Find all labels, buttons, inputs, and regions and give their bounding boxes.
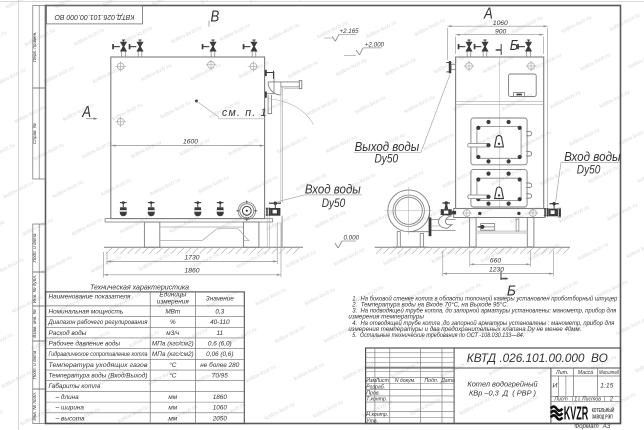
svg-text:Пров.: Пров. xyxy=(366,391,380,397)
svg-text:0,6 (6,0): 0,6 (6,0) xyxy=(208,340,232,347)
svg-text:KVZR: KVZR xyxy=(564,404,589,424)
svg-text:11: 11 xyxy=(216,330,223,337)
svg-text:%: % xyxy=(170,319,176,326)
svg-text:Техническая характеристика: Техническая характеристика xyxy=(90,284,189,291)
svg-text:2: 2 xyxy=(609,396,613,402)
svg-text:мм: мм xyxy=(168,415,177,422)
svg-text:+2.000: +2.000 xyxy=(365,42,385,49)
svg-text:N докум.: N докум. xyxy=(395,378,416,384)
svg-text:Температура воды (Вход/Выход): Температура воды (Вход/Выход) xyxy=(49,372,148,380)
svg-text:Температура уходящих газов: Температура уходящих газов xyxy=(49,361,149,369)
svg-text:КОТЕЛЬНЫЙ: КОТЕЛЬНЫЙ xyxy=(592,406,614,414)
svg-text:0,3: 0,3 xyxy=(215,308,224,315)
svg-text:°С: °С xyxy=(169,372,177,380)
svg-text:– высота: – высота xyxy=(49,415,85,422)
svg-text:5. Остальные технические треб: 5. Остальные технические требования по О… xyxy=(352,332,524,339)
svg-text:КВр –0,3 Д ( РВР ): КВр –0,3 Д ( РВР ) xyxy=(469,389,537,398)
svg-text:Подп.: Подп. xyxy=(424,378,438,384)
svg-text:Разраб.: Разраб. xyxy=(366,384,385,390)
svg-text:900: 900 xyxy=(495,29,506,36)
svg-text:Лит.: Лит. xyxy=(555,370,569,376)
svg-text:Рабочее давление воды: Рабочее давление воды xyxy=(49,339,121,347)
svg-text:ЗАВОД РЭП: ЗАВОД РЭП xyxy=(592,415,613,421)
svg-text:Котел водогрейный: Котел водогрейный xyxy=(467,380,537,389)
svg-text:Инв. № подл.: Инв. № подл. xyxy=(32,392,37,421)
svg-text:А: А xyxy=(483,6,493,23)
svg-text:1600: 1600 xyxy=(183,139,198,146)
svg-text:Перв. примен.: Перв. примен. xyxy=(32,31,37,62)
svg-text:А3: А3 xyxy=(602,423,611,430)
svg-text:Утв.: Утв. xyxy=(366,418,378,424)
svg-text:1730: 1730 xyxy=(185,254,200,261)
svg-text:Дата: Дата xyxy=(440,378,455,384)
svg-text:0.000: 0.000 xyxy=(344,235,360,242)
svg-text:Лист: Лист xyxy=(375,378,390,384)
svg-text:Масштаб: Масштаб xyxy=(599,370,620,376)
svg-text:1060: 1060 xyxy=(493,20,508,27)
svg-text:Лист: Лист xyxy=(553,396,568,402)
svg-text:Справ. №: Справ. № xyxy=(32,123,37,144)
svg-text:Б: Б xyxy=(510,38,519,54)
svg-text:Единицы: Единицы xyxy=(159,291,186,299)
svg-text:И: И xyxy=(553,383,558,390)
svg-text:Dy50: Dy50 xyxy=(577,163,601,177)
svg-text:1:15: 1:15 xyxy=(600,383,613,390)
svg-text:70/95: 70/95 xyxy=(212,373,228,380)
svg-text:не более 280: не более 280 xyxy=(200,361,239,369)
svg-text:Формат: Формат xyxy=(574,423,599,430)
svg-text:КВТД.026.101.00.000 ВО: КВТД.026.101.00.000 ВО xyxy=(54,13,134,20)
svg-text:Вход воды: Вход воды xyxy=(305,181,361,196)
svg-text:2050: 2050 xyxy=(212,415,228,422)
svg-text:Габариты котла: Габариты котла xyxy=(49,382,101,390)
svg-text:1: 1 xyxy=(574,396,577,402)
svg-text:МПа (кгс/см2): МПа (кгс/см2) xyxy=(152,340,194,347)
svg-text:м3/ч: м3/ч xyxy=(166,330,180,337)
svg-text:660: 660 xyxy=(490,257,501,264)
svg-text:40-110: 40-110 xyxy=(210,319,230,326)
svg-text:Значение: Значение xyxy=(206,296,234,303)
svg-text:Подп. и дата: Подп. и дата xyxy=(32,350,37,379)
svg-text:Расход воды: Расход воды xyxy=(49,329,87,337)
svg-text:Инв. № дубл.: Инв. № дубл. xyxy=(32,275,37,303)
svg-text:измерения: измерения xyxy=(157,299,190,306)
svg-text:– длина: – длина xyxy=(49,393,80,401)
svg-text:см. п. 1: см. п. 1 xyxy=(222,107,268,119)
svg-text:°С: °С xyxy=(169,361,177,369)
svg-text:Подп. и дата: Подп. и дата xyxy=(32,233,37,262)
svg-text:Гидравлическое сопротивление к: Гидравлическое сопротивление котла xyxy=(49,350,148,358)
svg-text:1060: 1060 xyxy=(213,405,228,412)
svg-text:мм: мм xyxy=(168,405,177,412)
svg-text:мм: мм xyxy=(168,394,177,401)
svg-text:Н.контр.: Н.контр. xyxy=(366,412,388,418)
svg-text:1860: 1860 xyxy=(213,394,228,401)
svg-text:Dy50: Dy50 xyxy=(322,196,346,210)
svg-text:МВт: МВт xyxy=(165,308,181,315)
svg-text:+2.165: +2.165 xyxy=(340,28,360,35)
svg-text:1230: 1230 xyxy=(489,267,504,274)
svg-text:В: В xyxy=(211,9,220,26)
svg-text:Т.контр.: Т.контр. xyxy=(366,397,387,403)
svg-text:Листов: Листов xyxy=(581,396,601,402)
svg-text:МПа (кгс/см2): МПа (кгс/см2) xyxy=(152,351,194,358)
svg-text:Масса: Масса xyxy=(578,370,593,376)
svg-text:Dy50: Dy50 xyxy=(375,151,399,165)
svg-text:Диапазон рабочего регулировани: Диапазон рабочего регулирования xyxy=(48,318,148,326)
svg-text:КВТД .026.101.00.000 ВО: КВТД .026.101.00.000 ВО xyxy=(467,351,608,365)
svg-text:Наименование показателя: Наименование показателя xyxy=(49,294,132,301)
svg-text:– ширина: – ширина xyxy=(49,405,85,412)
svg-text:Номинальная мощность: Номинальная мощность xyxy=(49,308,124,315)
svg-text:Взам. инв. №: Взам. инв. № xyxy=(32,309,37,337)
svg-text:0,06 (0,6): 0,06 (0,6) xyxy=(206,351,233,358)
svg-text:1860: 1860 xyxy=(185,268,200,275)
